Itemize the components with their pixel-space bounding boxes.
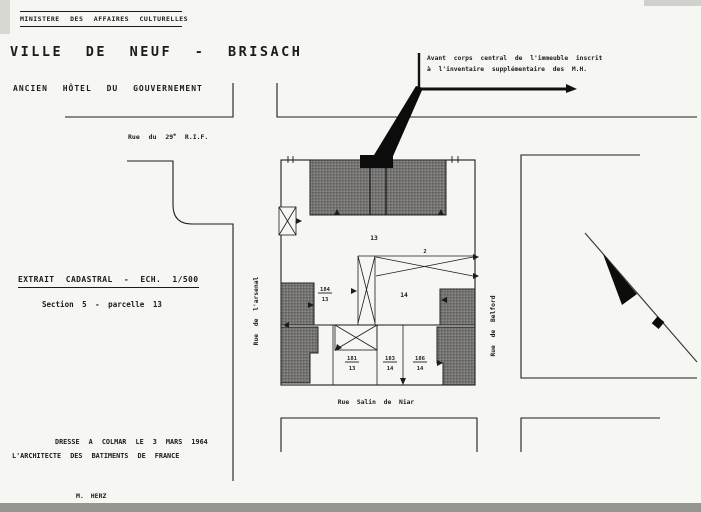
- fraction-label-184-13: 184 13: [318, 287, 332, 303]
- passage-x: [358, 256, 375, 323]
- fraction-label-181-13: 181 13: [345, 356, 359, 372]
- annotation-underline-arrowhead: [566, 84, 577, 93]
- frac1-den: 13: [349, 366, 356, 372]
- street-label-west: Rue de l'arsenal: [253, 276, 260, 345]
- hotel-building: [310, 160, 446, 215]
- frac2-num: 183: [385, 356, 395, 362]
- block-southwest-outline: [281, 418, 477, 452]
- north-arrow-head: [603, 254, 637, 305]
- north-arrow-shaft: [585, 233, 697, 362]
- buildings: [281, 155, 475, 385]
- frac0-den: 13: [322, 297, 329, 303]
- frac1-num: 181: [347, 356, 358, 362]
- street-label-south: Rue Salin de Niar: [338, 398, 415, 406]
- building-west-lower: [281, 327, 318, 383]
- crossed-box-south-x: [335, 325, 377, 350]
- street-block-outlines: [65, 83, 697, 481]
- cadastral-map: Rue de l'arsenal Rue de Belford Rue Sali…: [0, 0, 701, 512]
- parcel-14-label: 14: [400, 292, 408, 299]
- street-label-east: Rue de Belford: [490, 295, 497, 356]
- frac3-den: 14: [417, 366, 424, 372]
- annotation-leader-taper: [374, 86, 423, 163]
- building-east-lower: [437, 327, 475, 385]
- north-arrow-fletch: [652, 316, 665, 329]
- frac2-den: 14: [387, 366, 394, 372]
- dimension-2-label: 2: [423, 249, 426, 255]
- frac3-num: 186: [415, 356, 426, 362]
- frac0-num: 184: [320, 287, 331, 293]
- fraction-label-186-14: 186 14: [413, 356, 427, 372]
- block-southeast-outline: [521, 418, 660, 452]
- parcel-dividers: [333, 325, 403, 385]
- fraction-label-183-14: 183 14: [383, 356, 397, 372]
- north-arrow: [585, 233, 697, 362]
- block-west-outline: [127, 161, 233, 481]
- scanned-document-page: MINISTERE DES AFFAIRES CULTURELLES VILLE…: [0, 0, 701, 512]
- block-topleft-outline: [65, 83, 233, 117]
- courtyard-x: [376, 257, 473, 276]
- parcel-13-label: 13: [370, 235, 378, 242]
- building-east-upper: [440, 289, 475, 325]
- photo-bottom-edge: [0, 503, 701, 512]
- annotation-arrow: [374, 53, 577, 163]
